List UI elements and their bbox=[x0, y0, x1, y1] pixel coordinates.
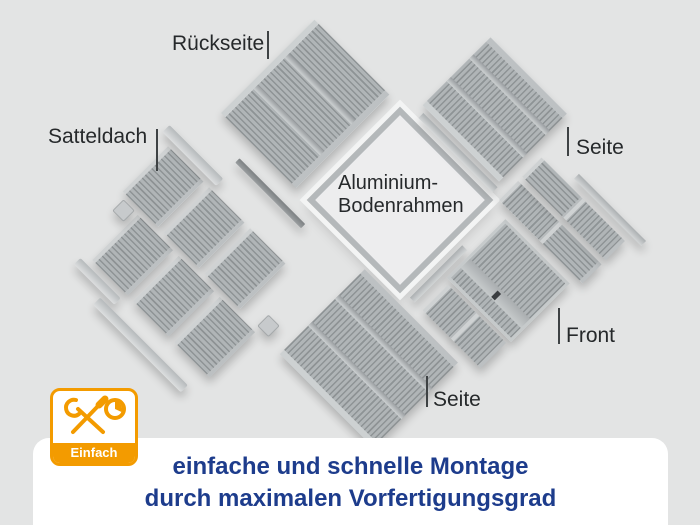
caption-line2: durch maximalen Vorfertigungsgrad bbox=[33, 485, 668, 513]
panel-seam bbox=[469, 54, 550, 135]
label-roof: Satteldach bbox=[48, 125, 147, 149]
panel-seam bbox=[308, 322, 406, 420]
label-floor-frame-line2: Bodenrahmen bbox=[338, 195, 464, 218]
label-front: Front bbox=[566, 324, 615, 348]
label-tick bbox=[567, 127, 569, 156]
label-tick bbox=[156, 129, 158, 171]
connector-cap bbox=[112, 199, 135, 222]
label-tick bbox=[558, 308, 560, 344]
label-floor-frame: Aluminium- Bodenrahmen bbox=[338, 172, 464, 218]
wrench-screwdriver-gauge-icon bbox=[61, 393, 127, 441]
panel-side-wall-bottom bbox=[280, 269, 458, 447]
panel-seam bbox=[447, 77, 528, 158]
label-side-wall-bottom: Seite bbox=[433, 388, 481, 412]
label-tick bbox=[267, 31, 269, 59]
label-tick bbox=[426, 376, 428, 407]
label-back-wall: Rückseite bbox=[172, 32, 264, 56]
badge-icon-area bbox=[53, 391, 135, 443]
easy-assembly-badge: Einfach bbox=[50, 388, 138, 466]
connector-cap bbox=[257, 315, 280, 338]
label-floor-frame-line1: Aluminium- bbox=[338, 172, 464, 195]
door-handle-icon bbox=[491, 291, 501, 301]
shed-assembly-infographic: Rückseite Satteldach Aluminium- Bodenrah… bbox=[0, 0, 700, 525]
badge-label: Einfach bbox=[53, 443, 135, 463]
panel-seam bbox=[285, 54, 356, 125]
panel-seam bbox=[335, 295, 433, 393]
panel-seam bbox=[254, 85, 325, 156]
label-side-wall-right: Seite bbox=[576, 136, 624, 160]
